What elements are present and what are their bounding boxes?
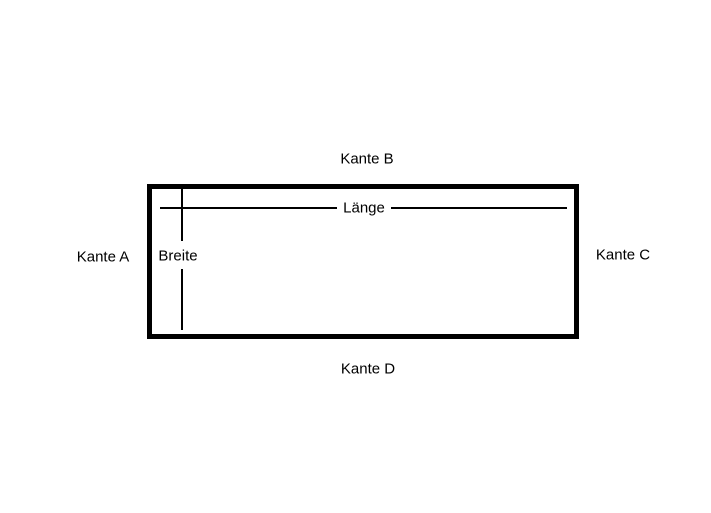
edge-label-bottom: Kante D [341, 362, 395, 377]
breite-dimension-line-lower [181, 269, 183, 330]
edge-label-right: Kante C [596, 248, 650, 263]
breite-dimension-label: Breite [158, 249, 197, 264]
laenge-dimension-label: Länge [340, 201, 388, 216]
edge-label-left: Kante A [77, 250, 130, 265]
edge-label-top: Kante B [340, 152, 393, 167]
diagram-canvas: Kante B Kante A Kante C Kante D Länge Br… [0, 0, 711, 513]
laenge-dimension-line-right [391, 207, 567, 209]
laenge-dimension-line-left [160, 207, 337, 209]
breite-dimension-line-upper [181, 189, 183, 241]
